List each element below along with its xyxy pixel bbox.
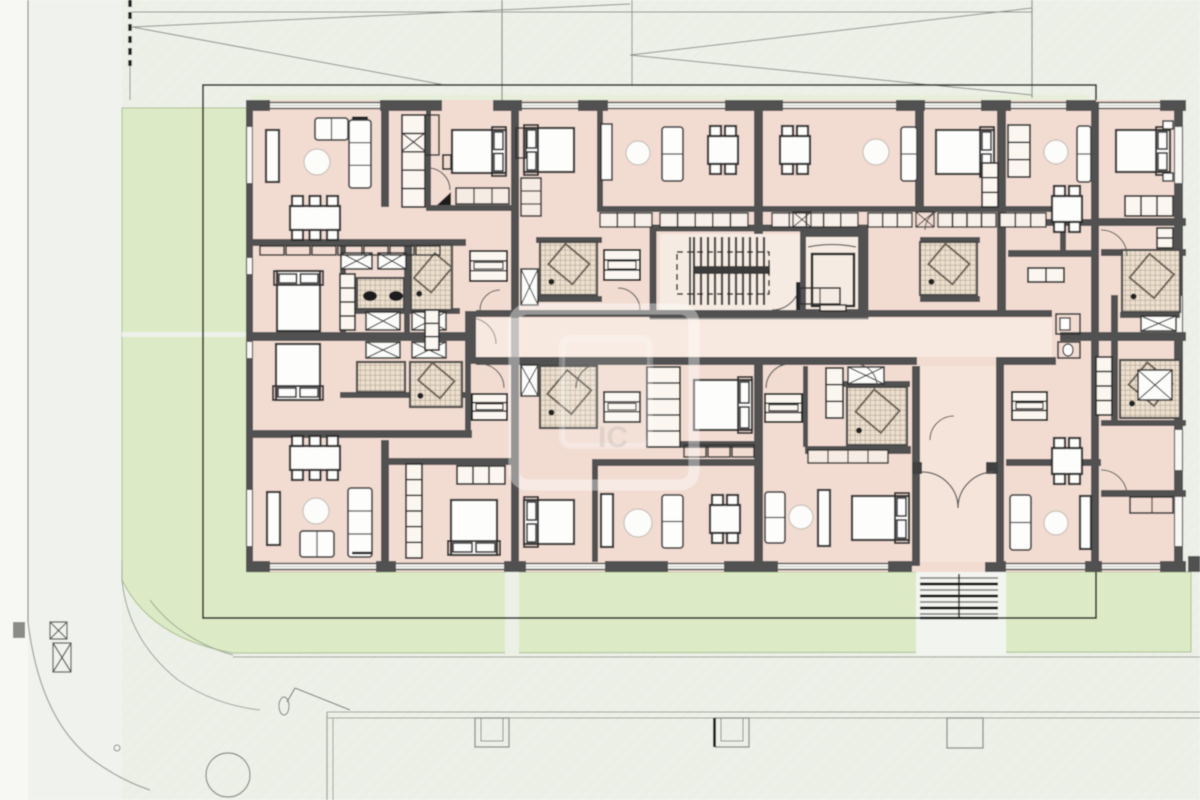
svg-text:IC: IC <box>598 421 628 454</box>
